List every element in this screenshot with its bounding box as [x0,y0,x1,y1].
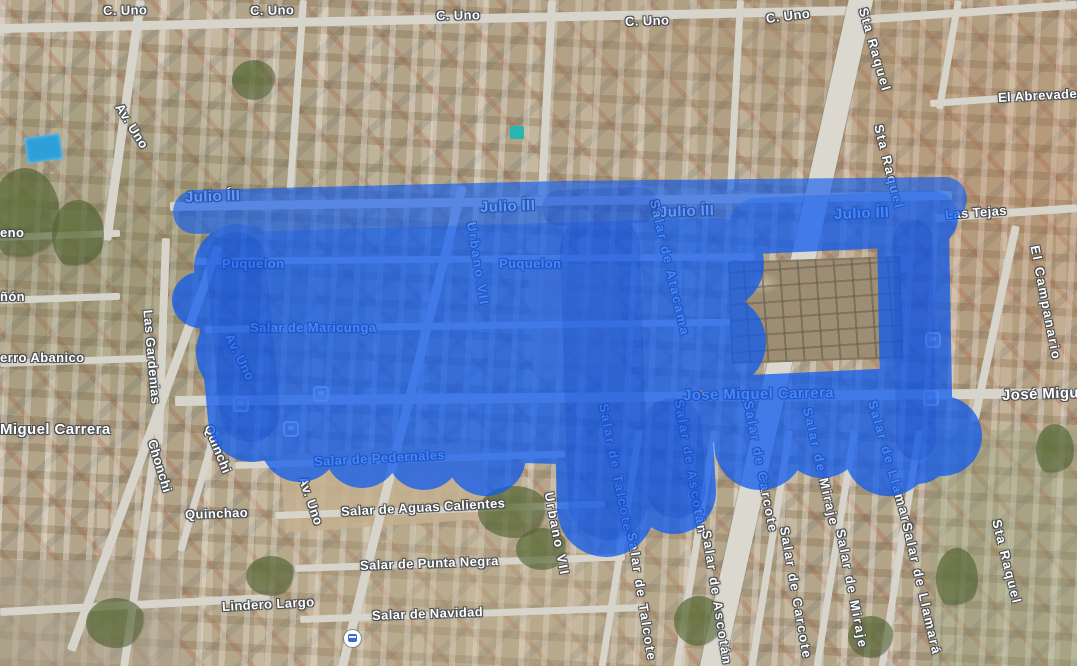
road-label-julio-iii: Julio ÍII [834,205,890,222]
road-label-c-uno: C. Uno [436,8,481,22]
road-label-julio-iii: Julio ÍII [480,198,536,215]
transit-station-icon[interactable] [925,332,941,348]
road-label-jose-miguel-carrera: Jose Miguel Carrera [683,385,834,403]
trees [232,60,276,100]
blue-roof-building [24,133,63,164]
road-label-puquelon: Puquelon [222,257,284,270]
road-label-jose-miguel: José Migue [1002,385,1077,403]
map-canvas[interactable]: C. Uno C. Uno C. Uno C. Uno C. Uno Av. U… [0,0,1077,666]
road-label-salar-navidad: Salar de Navidad [372,605,484,622]
trees [52,200,104,270]
road-label-c-uno: C. Uno [625,13,670,28]
road-label-salar-maricunga: Salar de Maricunga [250,321,376,334]
road-label-el-abrevadero: El Abrevadero [998,86,1077,104]
road-label-puquelon: Puquelon [499,257,561,270]
transit-station-icon[interactable] [233,396,249,412]
teal-pool [510,126,524,139]
bus-stop-icon[interactable] [344,630,361,647]
road-label-cut: ñón [0,290,25,303]
road-label-c-uno: C. Uno [250,3,295,17]
transit-station-icon[interactable] [313,386,329,402]
trees [1036,424,1074,476]
road-label-cut: eno [0,226,24,239]
power-substation-yard [728,256,903,364]
road-label-julio-iii: Julio ÍII [185,188,241,205]
trees [936,548,978,610]
road-label-c-uno: C. Uno [103,3,148,17]
road-label-miguel-carrera: Miguel Carrera [0,422,111,437]
road-label-cerro-abanico: erro Abanico [0,351,85,364]
transit-station-icon[interactable] [283,421,299,437]
trees [246,556,296,596]
road-label-quinchao: Quinchao [185,506,249,521]
transit-station-icon[interactable] [923,390,939,406]
road-label-julio-iii: Julio ÍII [659,203,715,220]
trees [86,598,146,648]
